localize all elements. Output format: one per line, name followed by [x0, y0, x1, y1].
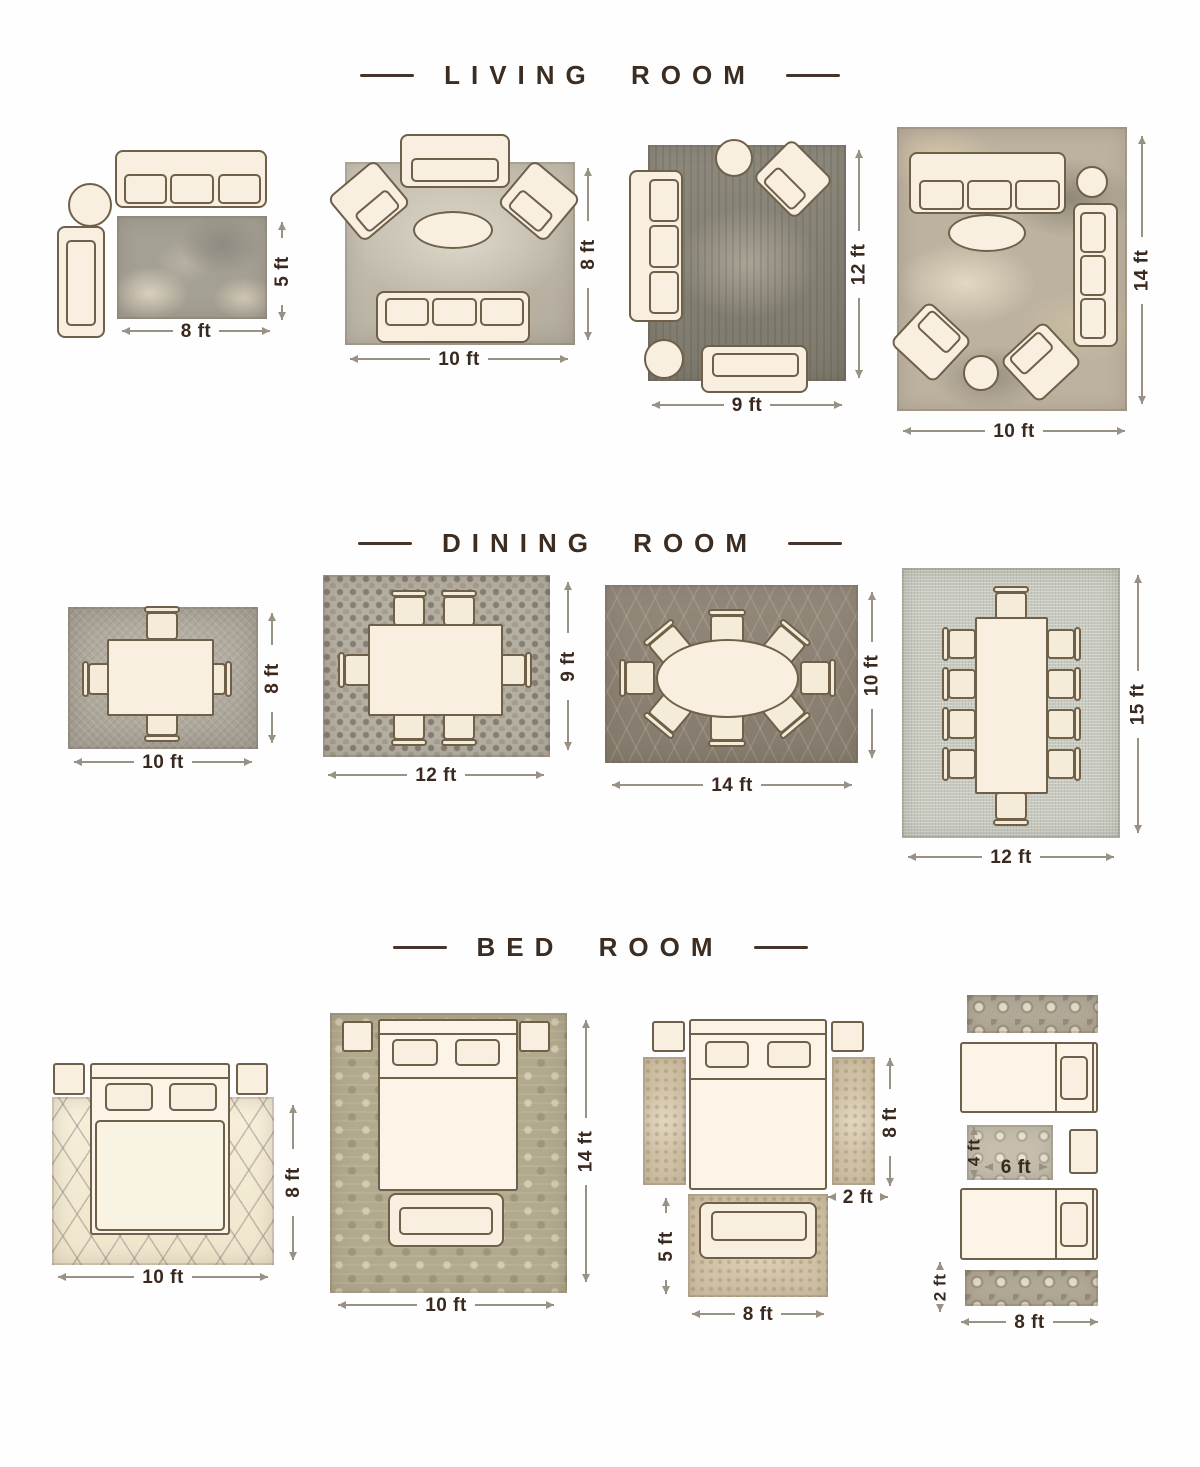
- sofa: [115, 150, 267, 208]
- pillow: [455, 1039, 500, 1066]
- dim-label: 14 ft: [703, 776, 761, 795]
- cushion: [170, 174, 214, 204]
- dining-chair: [146, 612, 178, 640]
- title-dash-right: [754, 946, 808, 949]
- cushion: [1015, 180, 1060, 210]
- dining-table: [975, 617, 1048, 794]
- pillow: [105, 1083, 153, 1111]
- height-dimension: 8 ft: [283, 1105, 303, 1260]
- blanket: [95, 1120, 225, 1231]
- runner-width-dimension: 2 ft: [930, 1262, 950, 1312]
- side-table: [644, 339, 684, 379]
- height-dimension: 12 ft: [849, 150, 869, 378]
- dim-label: 4 ft: [966, 1139, 983, 1167]
- nightstand: [236, 1063, 268, 1095]
- runner-width-dimension: 2 ft: [828, 1190, 888, 1204]
- width-dimension: 12 ft: [908, 850, 1114, 864]
- coffee-table: [948, 214, 1026, 252]
- dining-table: [368, 624, 503, 716]
- dining-chair: [948, 749, 976, 779]
- dim-label: 15 ft: [1129, 683, 1148, 725]
- dim-label: 12 ft: [982, 848, 1040, 867]
- dining-chair: [1047, 669, 1075, 699]
- height-dimension: 14 ft: [576, 1020, 596, 1282]
- dim-label: 12 ft: [407, 766, 465, 785]
- sofa: [376, 291, 530, 343]
- runner-rug: [965, 1270, 1098, 1306]
- nightstand: [831, 1021, 864, 1052]
- headboard-line: [379, 1033, 517, 1035]
- dim-label: 6 ft: [993, 1158, 1040, 1177]
- dining-chair: [1047, 749, 1075, 779]
- chaise: [57, 226, 105, 338]
- title-dash-left: [360, 74, 414, 77]
- dim-label: 10 ft: [430, 350, 488, 369]
- pillow: [1060, 1202, 1088, 1247]
- cushion: [411, 158, 499, 182]
- title-dash-right: [786, 74, 840, 77]
- runner-rug: [643, 1057, 686, 1185]
- cushion: [124, 174, 167, 204]
- cushion: [66, 240, 96, 326]
- dining-chair: [393, 596, 425, 626]
- sofa: [909, 152, 1066, 214]
- section-title-bed: BED ROOM: [477, 932, 724, 963]
- dining-table: [107, 639, 214, 716]
- dim-label: 8 ft: [579, 239, 598, 270]
- width-dimension: 8 ft: [122, 324, 270, 338]
- headboard-line: [91, 1077, 229, 1079]
- pillow: [767, 1041, 811, 1068]
- dim-label: 8 ft: [735, 1305, 782, 1324]
- side-table: [715, 139, 753, 177]
- height-dimension: 8 ft: [262, 613, 282, 743]
- width-dimension: 10 ft: [338, 1298, 554, 1312]
- headboard-line: [1092, 1189, 1094, 1259]
- nightstand: [53, 1063, 85, 1095]
- nightstand: [1069, 1129, 1098, 1174]
- dim-label: 2 ft: [835, 1188, 882, 1207]
- bed-fold-line: [379, 1077, 517, 1079]
- bench: [388, 1193, 504, 1247]
- width-dimension: 10 ft: [903, 424, 1125, 438]
- width-dimension: 10 ft: [74, 755, 252, 769]
- dining-table: [656, 639, 799, 718]
- title-dash-right: [788, 542, 842, 545]
- dim-label: 9 ft: [724, 396, 771, 415]
- side-table: [963, 355, 999, 391]
- cushion: [385, 298, 429, 326]
- section-header-bed: BED ROOM: [0, 932, 1200, 963]
- dim-label: 14 ft: [1133, 249, 1152, 291]
- dim-label: 9 ft: [559, 651, 578, 682]
- nightstand: [652, 1021, 685, 1052]
- dim-label: 8 ft: [1006, 1313, 1053, 1332]
- section-title-living: LIVING ROOM: [444, 60, 756, 91]
- width-dimension: 14 ft: [612, 778, 852, 792]
- height-dimension: 14 ft: [1132, 136, 1152, 404]
- dim-label: 10 ft: [134, 753, 192, 772]
- height-dimension: 15 ft: [1128, 575, 1148, 833]
- cushion: [712, 353, 799, 377]
- cushion: [480, 298, 524, 326]
- bed: [90, 1063, 230, 1235]
- rug-size-guide: LIVING ROOM 5 ft 8 ft: [0, 0, 1200, 1467]
- height-dimension: 8 ft: [578, 168, 598, 340]
- runner-height-dimension: 8 ft: [880, 1058, 900, 1186]
- headboard-line: [1092, 1043, 1094, 1112]
- headboard-line: [690, 1033, 826, 1035]
- cushion: [919, 180, 964, 210]
- nightstand: [342, 1021, 373, 1052]
- bed-fold-line: [690, 1078, 826, 1080]
- dining-chair: [995, 592, 1027, 620]
- dim-label: 2 ft: [932, 1273, 949, 1301]
- dim-label: 10 ft: [134, 1268, 192, 1287]
- twin-bed: [960, 1188, 1098, 1260]
- foot-width-dimension: 8 ft: [692, 1307, 824, 1321]
- cushion: [399, 1207, 493, 1235]
- title-dash-left: [393, 946, 447, 949]
- cushion: [432, 298, 477, 326]
- height-dimension: 5 ft: [272, 222, 292, 320]
- section-header-living: LIVING ROOM: [0, 60, 1200, 91]
- side-table: [68, 183, 112, 227]
- width-dimension: 12 ft: [328, 768, 544, 782]
- dim-label: 8 ft: [284, 1167, 303, 1198]
- bed-fold-line: [1055, 1043, 1057, 1112]
- cushion: [1080, 298, 1106, 339]
- runner-rug: [832, 1057, 875, 1185]
- cushion: [649, 179, 679, 222]
- coffee-table: [413, 211, 493, 249]
- cushion: [218, 174, 261, 204]
- nightstand: [519, 1021, 550, 1052]
- title-dash-left: [358, 542, 412, 545]
- cushion: [649, 225, 679, 268]
- twin-bed: [960, 1042, 1098, 1113]
- dim-label: 12 ft: [850, 243, 869, 285]
- cushion: [1080, 212, 1106, 253]
- dining-chair: [948, 629, 976, 659]
- pillow: [169, 1083, 217, 1111]
- dim-label: 10 ft: [985, 422, 1043, 441]
- width-dimension: 10 ft: [350, 352, 568, 366]
- bed: [378, 1019, 518, 1191]
- cushion: [711, 1211, 807, 1241]
- pillow: [705, 1041, 749, 1068]
- loveseat: [701, 345, 808, 393]
- bed-fold-line: [1055, 1189, 1057, 1259]
- pillow: [392, 1039, 438, 1066]
- dim-label: 8 ft: [881, 1107, 900, 1138]
- dining-chair: [948, 709, 976, 739]
- width-dimension: 8 ft: [961, 1315, 1098, 1329]
- side-table: [1076, 166, 1108, 198]
- sofa: [1073, 203, 1118, 347]
- dining-chair: [995, 792, 1027, 820]
- bed: [689, 1019, 827, 1190]
- section-title-dining: DINING ROOM: [442, 528, 758, 559]
- dining-chair: [948, 669, 976, 699]
- width-dimension: 9 ft: [652, 398, 842, 412]
- height-dimension: 9 ft: [558, 582, 578, 750]
- height-dimension: 10 ft: [862, 592, 882, 758]
- dim-label: 10 ft: [863, 654, 882, 696]
- loveseat: [400, 134, 510, 188]
- mid-rug-height-dimension: 4 ft: [964, 1127, 984, 1178]
- dim-label: 14 ft: [577, 1130, 596, 1172]
- dining-chair: [800, 661, 830, 695]
- dim-label: 8 ft: [263, 663, 282, 694]
- dining-chair: [1047, 629, 1075, 659]
- bench: [699, 1202, 817, 1259]
- dim-label: 5 ft: [273, 256, 292, 287]
- dining-chair: [1047, 709, 1075, 739]
- runner-rug: [967, 995, 1098, 1033]
- width-dimension: 10 ft: [58, 1270, 268, 1284]
- cushion: [1080, 255, 1106, 296]
- rug: [117, 216, 267, 319]
- dim-label: 10 ft: [417, 1296, 475, 1315]
- section-header-dining: DINING ROOM: [0, 528, 1200, 559]
- dim-label: 8 ft: [173, 322, 220, 341]
- cushion: [649, 271, 679, 314]
- sofa: [629, 170, 683, 322]
- dim-label: 5 ft: [657, 1231, 676, 1262]
- dining-chair: [443, 596, 475, 626]
- foot-height-dimension: 5 ft: [656, 1198, 676, 1294]
- cushion: [967, 180, 1012, 210]
- pillow: [1060, 1056, 1088, 1100]
- dining-chair: [625, 661, 655, 695]
- mid-rug-width-dimension: 6 ft: [985, 1160, 1047, 1174]
